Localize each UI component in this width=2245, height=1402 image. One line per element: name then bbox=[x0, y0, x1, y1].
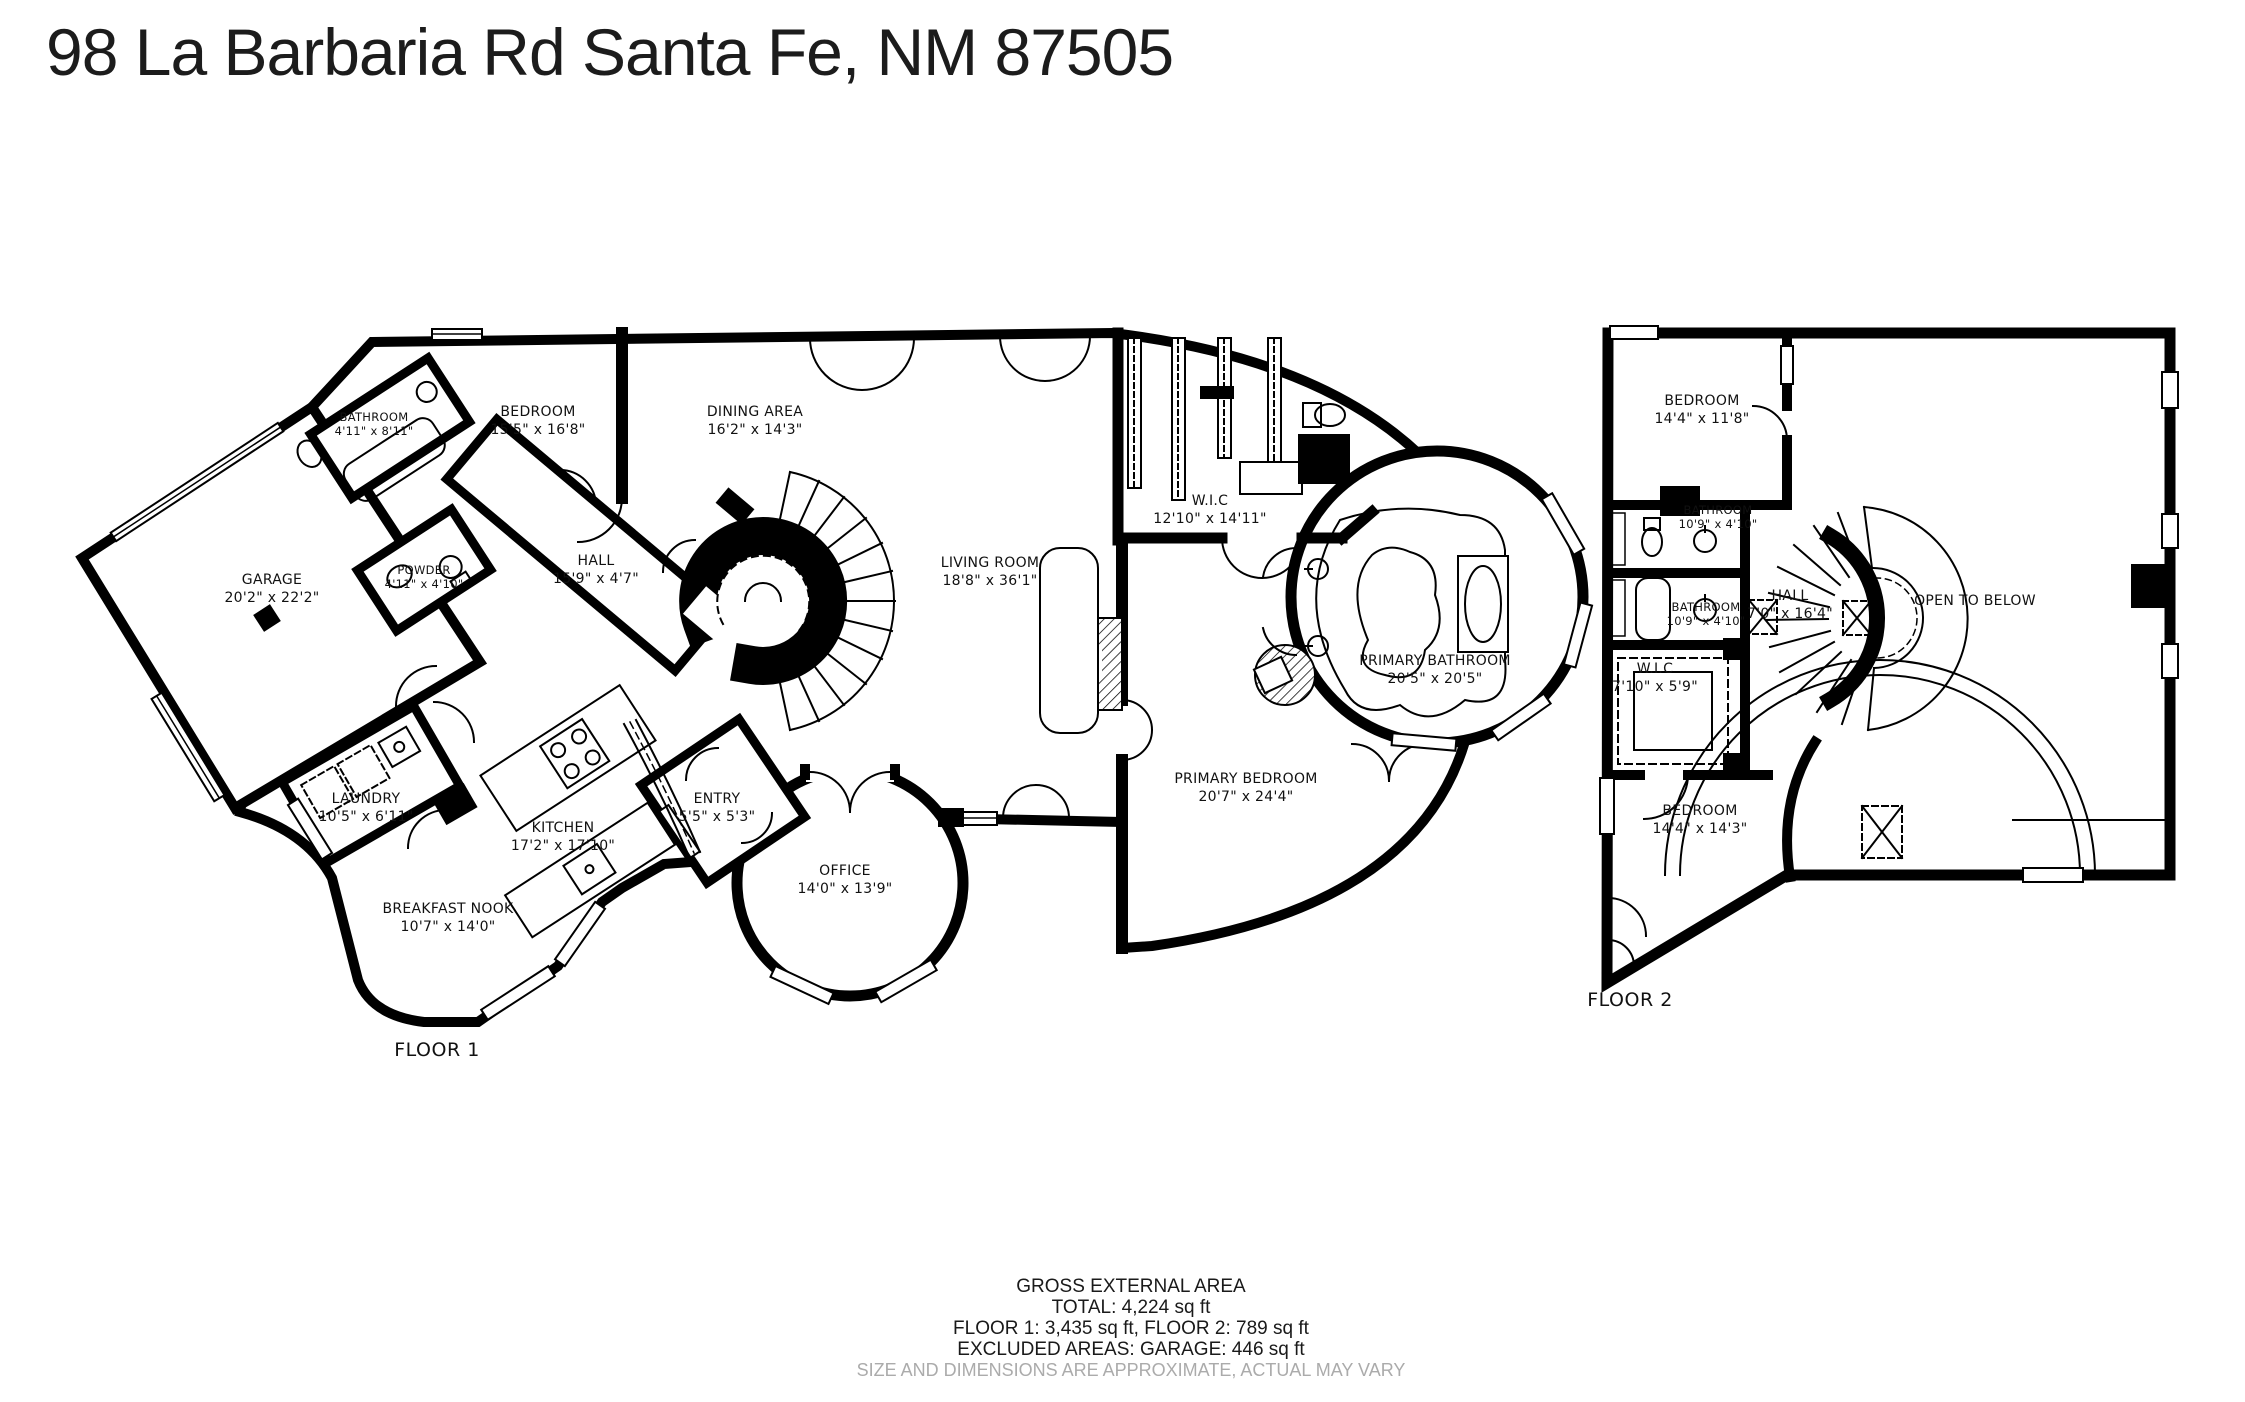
page-title: 98 La Barbaria Rd Santa Fe, NM 87505 bbox=[46, 14, 1173, 90]
room-label-bedroom-f1: BEDROOM15'5" x 16'8" bbox=[490, 403, 585, 439]
fireplace-floor2 bbox=[2131, 564, 2170, 608]
room-label-bedroom-f2-bottom: BEDROOM14'4" x 14'3" bbox=[1652, 802, 1747, 838]
summary-line-2: TOTAL: 4,224 sq ft bbox=[857, 1297, 1406, 1318]
floor1-tag: FLOOR 1 bbox=[394, 1039, 480, 1061]
room-label-garage: GARAGE20'2" x 22'2" bbox=[224, 571, 319, 607]
room-label-breakfast-nook: BREAKFAST NOOK10'7" x 14'0" bbox=[382, 900, 513, 936]
room-label-open-to-below: OPEN TO BELOW bbox=[1914, 592, 2036, 610]
room-label-dining: DINING AREA16'2" x 14'3" bbox=[707, 403, 803, 439]
room-label-hall-f2: HALL7'0" x 16'4" bbox=[1747, 587, 1833, 623]
summary-disclaimer: SIZE AND DIMENSIONS ARE APPROXIMATE, ACT… bbox=[857, 1360, 1406, 1381]
room-label-bathroom-f1: BATHROOM4'11" x 8'11" bbox=[335, 410, 414, 438]
summary-line-1: GROSS EXTERNAL AREA bbox=[857, 1276, 1406, 1297]
room-label-living: LIVING ROOM18'8" x 36'1" bbox=[941, 554, 1040, 590]
room-label-wic-f2: W.I.C7'10" x 5'9" bbox=[1612, 660, 1698, 696]
room-label-bedroom-f2-top: BEDROOM14'4" x 11'8" bbox=[1654, 392, 1749, 428]
floorplan-page: 98 La Barbaria Rd Santa Fe, NM 87505 BAT… bbox=[0, 0, 2245, 1402]
room-label-entry: ENTRY5'5" x 5'3" bbox=[679, 790, 756, 826]
room-label-kitchen: KITCHEN17'2" x 17'10" bbox=[511, 819, 615, 855]
room-label-laundry: LAUNDRY10'5" x 6'11" bbox=[318, 790, 413, 826]
room-label-hall-f1: HALL15'9" x 4'7" bbox=[553, 552, 639, 588]
room-label-bathroom-f2-lower: BATHROOM10'9" x 4'10" bbox=[1667, 600, 1746, 628]
room-label-bathroom-f2-upper: BATHROOM10'9" x 4'10" bbox=[1679, 503, 1758, 531]
summary-line-4: EXCLUDED AREAS: GARAGE: 446 sq ft bbox=[857, 1339, 1406, 1360]
floorplan-drawing bbox=[0, 0, 2245, 1402]
summary-line-3: FLOOR 1: 3,435 sq ft, FLOOR 2: 789 sq ft bbox=[857, 1318, 1406, 1339]
room-label-powder: POWDER4'11" x 4'10" bbox=[385, 563, 464, 591]
area-summary: GROSS EXTERNAL AREA TOTAL: 4,224 sq ft F… bbox=[857, 1276, 1406, 1381]
floor2-tag: FLOOR 2 bbox=[1587, 989, 1673, 1011]
room-label-office: OFFICE14'0" x 13'9" bbox=[797, 862, 892, 898]
room-label-wic-f1: W.I.C12'10" x 14'11" bbox=[1153, 492, 1267, 528]
room-label-primary-bathroom: PRIMARY BATHROOM20'5" x 20'5" bbox=[1359, 652, 1511, 688]
room-label-primary-bedroom: PRIMARY BEDROOM20'7" x 24'4" bbox=[1174, 770, 1317, 806]
